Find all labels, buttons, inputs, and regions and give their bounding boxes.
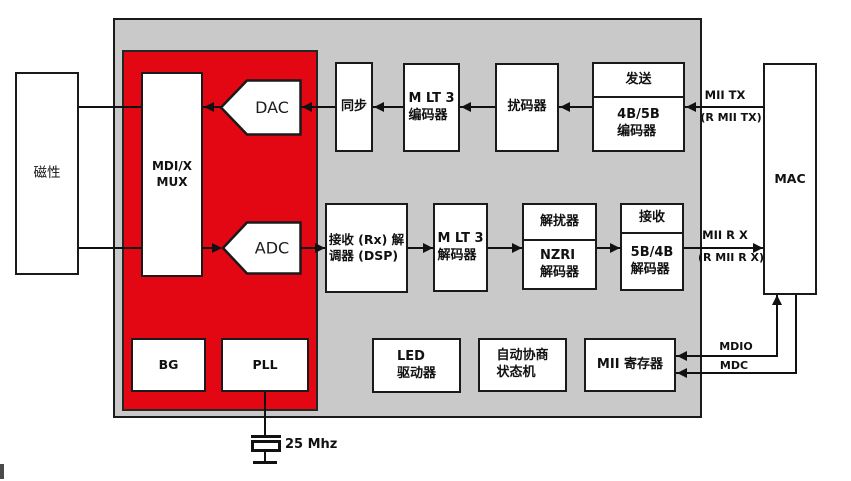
crystal-frequency-label: 25 Mhz <box>285 437 335 452</box>
mdc-vertical-line <box>795 295 797 374</box>
mlt3-encoder-label: M LT 3 编码器 <box>408 91 454 125</box>
mdio-arrow-into-mac <box>772 295 782 305</box>
tx-arrow-into-mux <box>204 102 214 112</box>
mac-block: MAC <box>763 63 817 295</box>
mlt3-decoder-label: M LT 3 解码器 <box>437 231 483 265</box>
rx-dsp-label: 接收 (Rx) 解 调器 (DSP) <box>329 232 404 265</box>
pll-block: PLL <box>221 338 309 392</box>
magnetics-label: 磁性 <box>34 165 61 183</box>
rx-line-5b4b-mac <box>684 247 763 249</box>
bg-label: BG <box>159 357 179 373</box>
edge-artifact <box>0 464 4 479</box>
tx-arrow-into-scrambler <box>560 102 570 112</box>
rx-arrow-into-descrambler <box>512 243 522 253</box>
magnetics-block: 磁性 <box>15 72 79 275</box>
led-driver-label: LED 驱动器 <box>397 349 436 383</box>
sync-block: 同步 <box>335 62 373 152</box>
tx-4b5b-encoder-label: 4B/5B 编码器 <box>594 98 683 150</box>
descrambler-block: 解扰器 NZRI 解码器 <box>522 203 597 290</box>
crystal-line-top <box>264 392 266 436</box>
tx-arrow-into-dac <box>302 102 312 112</box>
nzri-decoder-label: NZRI 解码器 <box>524 241 595 288</box>
mlt3-decoder-block: M LT 3 解码器 <box>433 203 488 292</box>
tx-arrow-into-4b5b <box>686 102 696 112</box>
crystal-plate-top <box>251 435 281 438</box>
rx-line-magnetics-mux <box>79 247 141 249</box>
adc-block: ADC <box>221 221 302 275</box>
mii-registers-block: MII 寄存器 <box>584 338 676 392</box>
tx-4b5b-encoder-block: 发送 4B/5B 编码器 <box>592 62 685 152</box>
descrambler-header: 解扰器 <box>524 205 595 241</box>
autoneg-state-machine-block: 自动协商 状态机 <box>478 338 567 392</box>
mac-label: MAC <box>774 171 805 187</box>
mlt3-encoder-block: M LT 3 编码器 <box>403 63 460 152</box>
bg-block: BG <box>131 338 206 392</box>
pll-label: PLL <box>252 357 277 373</box>
rmii-rx-label: (R MII R X) <box>696 251 766 264</box>
tx-arrow-into-sync <box>374 102 384 112</box>
rx-dsp-block: 接收 (Rx) 解 调器 (DSP) <box>325 203 408 293</box>
mdc-arrow-into-registers <box>677 368 687 378</box>
mdio-arrow-into-registers <box>677 351 687 361</box>
phy-block-diagram: 磁性 MDI/X MUX DAC ADC 同步 M LT 3 编码器 扰码器 发… <box>0 0 851 481</box>
dac-block: DAC <box>219 79 302 136</box>
crystal-icon <box>251 440 281 452</box>
adc-label: ADC <box>255 239 289 258</box>
mdc-label: MDC <box>714 359 754 372</box>
sync-label: 同步 <box>341 99 367 116</box>
tx-arrow-into-mlt3-encoder <box>461 102 471 112</box>
rx-5b4b-decoder-label: 5B/4B 解码器 <box>622 234 682 289</box>
rx-arrow-into-adc <box>212 243 222 253</box>
tx-header: 发送 <box>594 64 683 98</box>
mdix-mux-block: MDI/X MUX <box>141 72 203 277</box>
mdio-line <box>676 355 778 357</box>
rx-arrow-into-mlt3-decoder <box>423 243 433 253</box>
mdc-line <box>676 372 797 374</box>
mdix-mux-label: MDI/X MUX <box>152 159 192 190</box>
rx-5b4b-decoder-block: 接收 5B/4B 解码器 <box>620 203 684 291</box>
rx-arrow-into-5b4b <box>610 243 620 253</box>
mdio-label: MDIO <box>714 340 758 353</box>
mii-rx-label: MII R X <box>694 228 756 242</box>
led-driver-block: LED 驱动器 <box>372 338 461 393</box>
crystal-ground-tick <box>253 461 277 464</box>
scrambler-block: 扰码器 <box>495 63 559 152</box>
scrambler-label: 扰码器 <box>507 99 546 116</box>
autoneg-label: 自动协商 状态机 <box>496 348 548 382</box>
mii-tx-label: MII TX <box>694 88 756 102</box>
tx-line-mac-4b5b <box>685 106 763 108</box>
rx-header: 接收 <box>622 205 682 234</box>
rmii-tx-label: (R MII TX) <box>696 111 766 124</box>
dac-label: DAC <box>255 98 289 117</box>
mii-registers-label: MII 寄存器 <box>597 357 663 374</box>
tx-line-mux-magnetics <box>79 106 141 108</box>
rx-arrow-into-dsp <box>315 243 325 253</box>
